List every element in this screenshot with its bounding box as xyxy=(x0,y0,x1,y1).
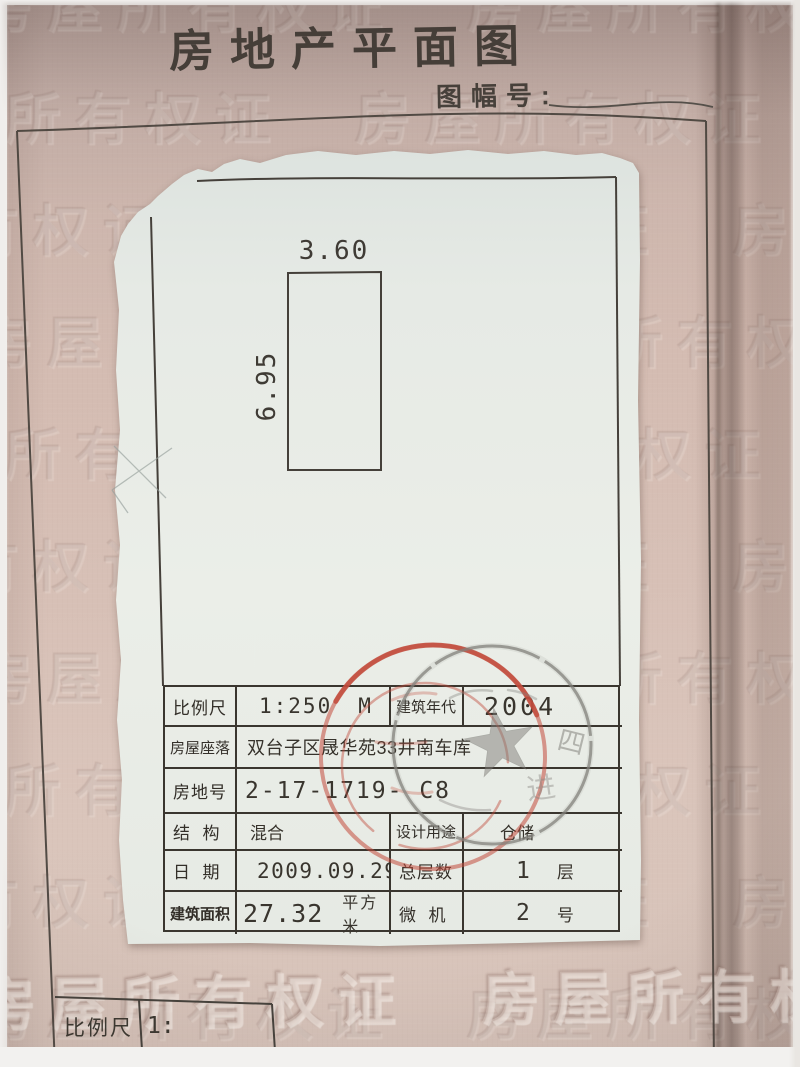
label-scale: 比例尺 xyxy=(165,687,235,725)
info-table: 比例尺 1:250M 建筑年代 2004 房屋座落 双台子区晟华苑33井南车库 … xyxy=(163,685,620,932)
label-computer-no: 微 机 xyxy=(389,890,462,934)
watermark-row: 房屋所有权证 房屋所有权证 房屋所有权证 房屋所有权证 xyxy=(7,523,793,604)
bottom-scale-label: 比例尺 xyxy=(64,1012,133,1042)
watermark-row: 房屋所有权证 房屋所有权证 房屋所有权证 房屋所有权证 xyxy=(7,75,793,156)
value-plot-no: 2-17-1719- C8 xyxy=(235,767,622,812)
label-structure: 结 构 xyxy=(165,812,235,849)
watermark-row: 房屋所有权证 房屋所有权证 房屋所有权证 房屋所有权证 xyxy=(7,411,793,492)
value-scale: 1:250M xyxy=(235,687,389,725)
label-design-use: 设计用途 xyxy=(389,812,462,849)
dimension-width: 3.60 xyxy=(292,236,376,266)
label-build-year: 建筑年代 xyxy=(389,687,462,725)
value-structure: 混合 xyxy=(235,812,389,849)
value-location: 双台子区晟华苑33井南车库 xyxy=(235,725,622,767)
value-floor-area: 27.32平方米 xyxy=(235,890,389,934)
photo-edge-bottom xyxy=(0,1047,800,1067)
sheet-number-label: 图幅号: xyxy=(436,75,559,114)
value-total-floors: 1层 xyxy=(462,849,622,890)
page-title: 房地产平面图 xyxy=(152,9,553,80)
value-computer-no: 2号 xyxy=(462,890,622,934)
value-date: 2009.09.29 xyxy=(235,849,389,890)
bottom-scale-value: 1: xyxy=(147,1013,175,1039)
watermark-row: 房屋所有权证 房屋所有权证 房屋所有权证 房屋所有权证 xyxy=(7,299,793,380)
label-total-floors: 总层数 xyxy=(389,849,462,890)
value-design-use: 仓储 xyxy=(462,812,622,849)
label-date: 日 期 xyxy=(165,849,235,890)
document-photo: 房屋所有权证 房屋所有权证 房屋所有权证 房屋所有权证 房屋所有权证 房屋所有权… xyxy=(0,0,800,1067)
label-floor-area: 建筑面积 xyxy=(165,890,235,934)
dimension-height: 6.95 xyxy=(252,334,284,438)
watermark-row: 房屋所有权证 房屋所有权证 房屋所有权证 房屋所有权证 xyxy=(7,187,793,268)
label-location: 房屋座落 xyxy=(165,725,235,767)
value-build-year: 2004 xyxy=(462,687,622,725)
label-plot-no: 房地号 xyxy=(165,767,235,812)
